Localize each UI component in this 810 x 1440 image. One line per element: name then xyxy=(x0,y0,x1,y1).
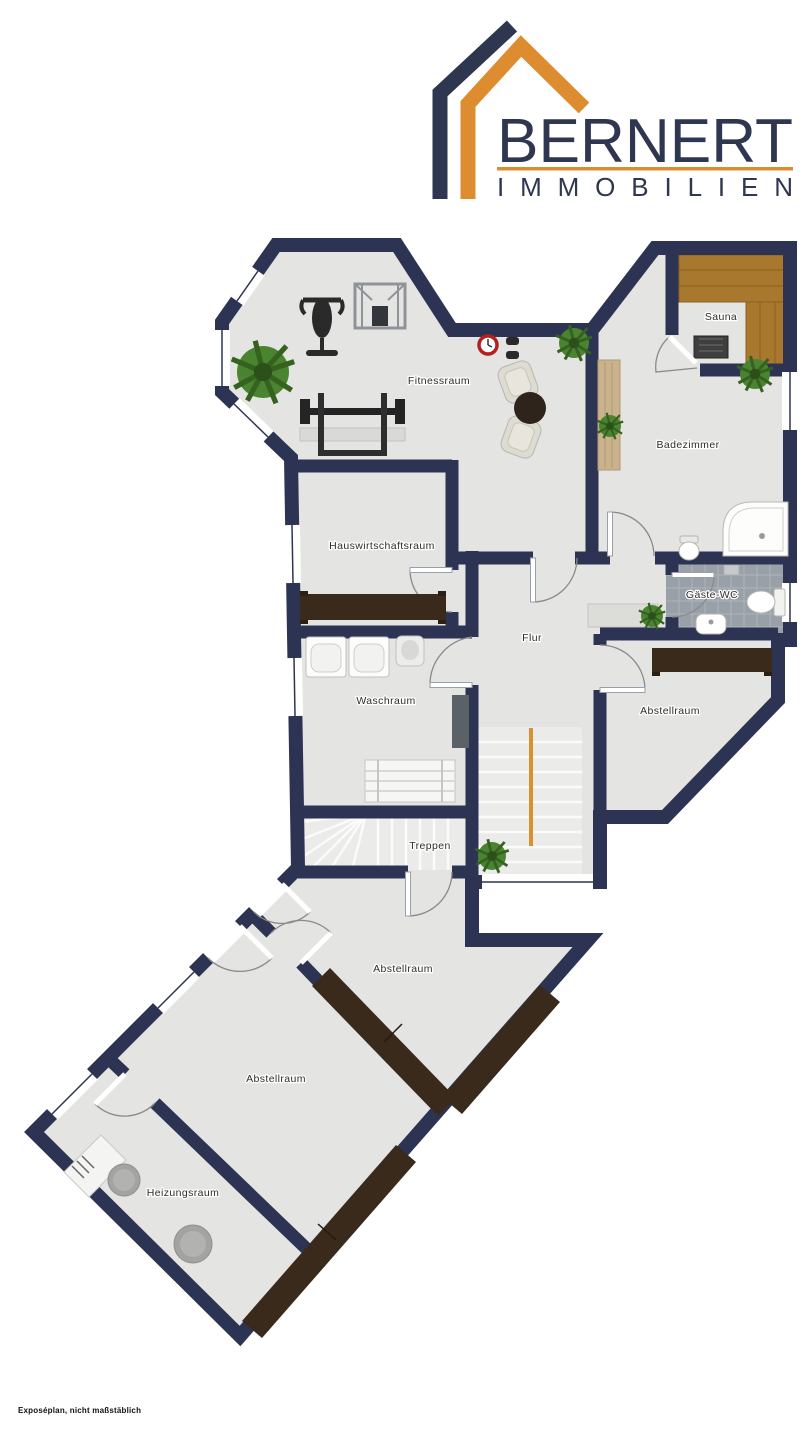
sideboard-storage-right xyxy=(652,648,772,676)
room-label-abstellraum-3: Abstellraum xyxy=(246,1073,306,1085)
laundry-sink xyxy=(396,636,424,666)
dryer-cabinet xyxy=(452,695,469,748)
sideboard-hwr xyxy=(300,591,446,624)
room-label-abstellraum-1: Abstellraum xyxy=(640,705,700,717)
toilet-bathroom xyxy=(679,536,699,560)
room-label-fitnessraum: Fitnessraum xyxy=(408,375,470,387)
floorplan-page: BERNERT IMMOBILIEN xyxy=(0,0,810,1440)
logo: BERNERT IMMOBILIEN xyxy=(440,26,793,202)
brand-name: BERNERT xyxy=(497,107,793,176)
room-label-waschraum: Waschraum xyxy=(356,695,415,707)
sink-guest-wc xyxy=(696,614,726,634)
footer-note: Exposéplan, nicht maßstäblich xyxy=(18,1406,141,1415)
bathroom-bench xyxy=(598,360,620,470)
corner-bathtub xyxy=(723,502,788,556)
drying-rack xyxy=(365,760,455,802)
side-table xyxy=(514,392,546,424)
room-label-heizungsraum: Heizungsraum xyxy=(147,1187,220,1199)
brand-subtitle: IMMOBILIEN xyxy=(497,172,793,202)
room-label-treppen: Treppen xyxy=(409,840,451,852)
room-label-hauswirtschaftsraum: Hauswirtschaftsraum xyxy=(329,540,435,552)
room-label-gaeste-wc: Gäste-WC xyxy=(686,589,738,601)
room-label-flur: Flur xyxy=(522,632,542,644)
wall-clock xyxy=(479,336,497,354)
wc-shelf xyxy=(724,565,739,575)
room-label-sauna: Sauna xyxy=(705,311,737,323)
room-label-badezimmer: Badezimmer xyxy=(657,439,720,451)
floorplan-svg: BERNERT IMMOBILIEN xyxy=(0,0,810,1440)
room-label-abstellraum-2: Abstellraum xyxy=(373,963,433,975)
brand-underline xyxy=(497,167,793,171)
